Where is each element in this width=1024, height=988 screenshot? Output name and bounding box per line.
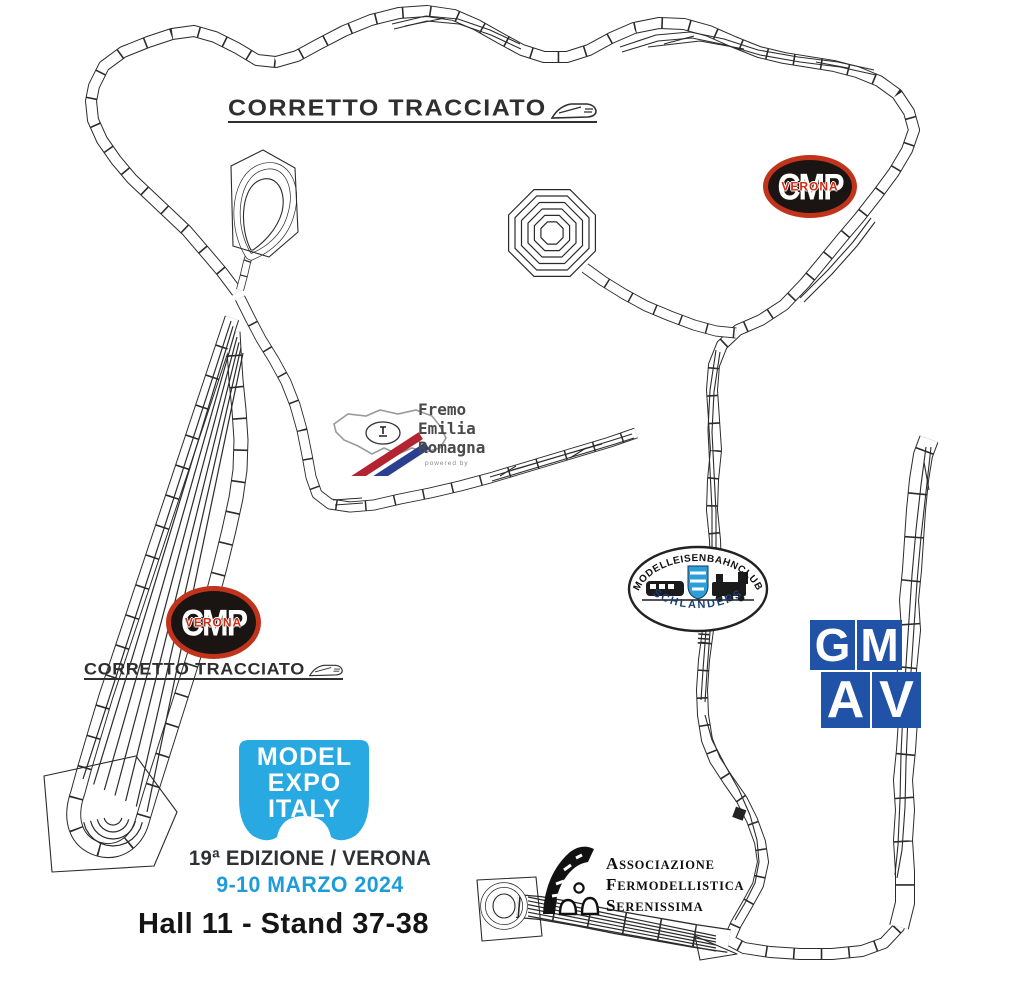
edition-title: 19ª EDIZIONE / VERONA: [169, 847, 450, 871]
layout-poster: CORRETTO TRACCIATO CORRETTO TRACCIATO CM…: [0, 0, 1024, 988]
gmav-letter-m: M: [857, 620, 902, 670]
gmav-row-1: G M: [810, 620, 928, 670]
cmp-verona-logo-left: CMP VERONA: [166, 586, 261, 659]
gmav-letter-v: V: [872, 672, 921, 728]
fremo-line3: Romagna: [418, 438, 485, 457]
corretto-tracciato-text: CORRETTO TRACCIATO: [228, 97, 547, 120]
model-expo-italy-logo: MODEL EXPO ITALY: [236, 737, 373, 847]
fremo-line1: Fremo: [418, 400, 485, 419]
fremo-line2: Emilia: [418, 419, 485, 438]
corretto-tracciato-text: CORRETTO TRACCIATO: [84, 661, 305, 678]
track-plan-svg: [0, 0, 1024, 988]
cmp-city-label: VERONA: [768, 179, 852, 193]
mei-line3: ITALY: [236, 796, 373, 822]
serenissima-line2: Fermodellistica: [606, 875, 744, 896]
fremo-emilia-romagna-logo: Fremo Emilia Romagna powered by: [328, 396, 503, 488]
gmav-letter-a: A: [821, 672, 870, 728]
serenissima-logo: Associazione Fermodellistica Serenissima: [538, 838, 744, 918]
cmp-verona-logo-right: CMP VERONA: [763, 155, 857, 218]
train-nose-icon: [309, 663, 343, 678]
mei-line2: EXPO: [236, 770, 373, 796]
train-nose-icon: [551, 101, 597, 121]
schlanders-oval: MODELLEISENBAHNCLUB SCHLANDERS: [626, 544, 770, 634]
serenissima-line1: Associazione: [606, 854, 744, 875]
gmav-logo: G M A V: [810, 620, 928, 732]
corretto-tracciato-logo-top: CORRETTO TRACCIATO: [228, 96, 597, 123]
serenissima-line3: Serenissima: [606, 896, 744, 917]
hall-stand-label: Hall 11 - Stand 37-38: [138, 908, 478, 941]
corretto-tracciato-logo-left: CORRETTO TRACCIATO: [84, 660, 343, 680]
gmav-letter-g: G: [810, 620, 855, 670]
fremo-text: Fremo Emilia Romagna: [418, 400, 485, 457]
schlanders-club-logo: MODELLEISENBAHNCLUB SCHLANDERS: [626, 544, 770, 634]
gmav-row-2: A V: [821, 672, 928, 728]
cmp-city-label: VERONA: [171, 615, 256, 629]
mei-line1: MODEL: [236, 744, 373, 770]
viaduct-icon: [538, 838, 600, 918]
shield-icon: [688, 566, 708, 599]
event-date: 9-10 MARZO 2024: [169, 872, 450, 898]
model-expo-text: MODEL EXPO ITALY: [236, 744, 373, 822]
serenissima-text: Associazione Fermodellistica Serenissima: [606, 838, 744, 917]
fremo-subtext: powered by: [425, 460, 469, 467]
